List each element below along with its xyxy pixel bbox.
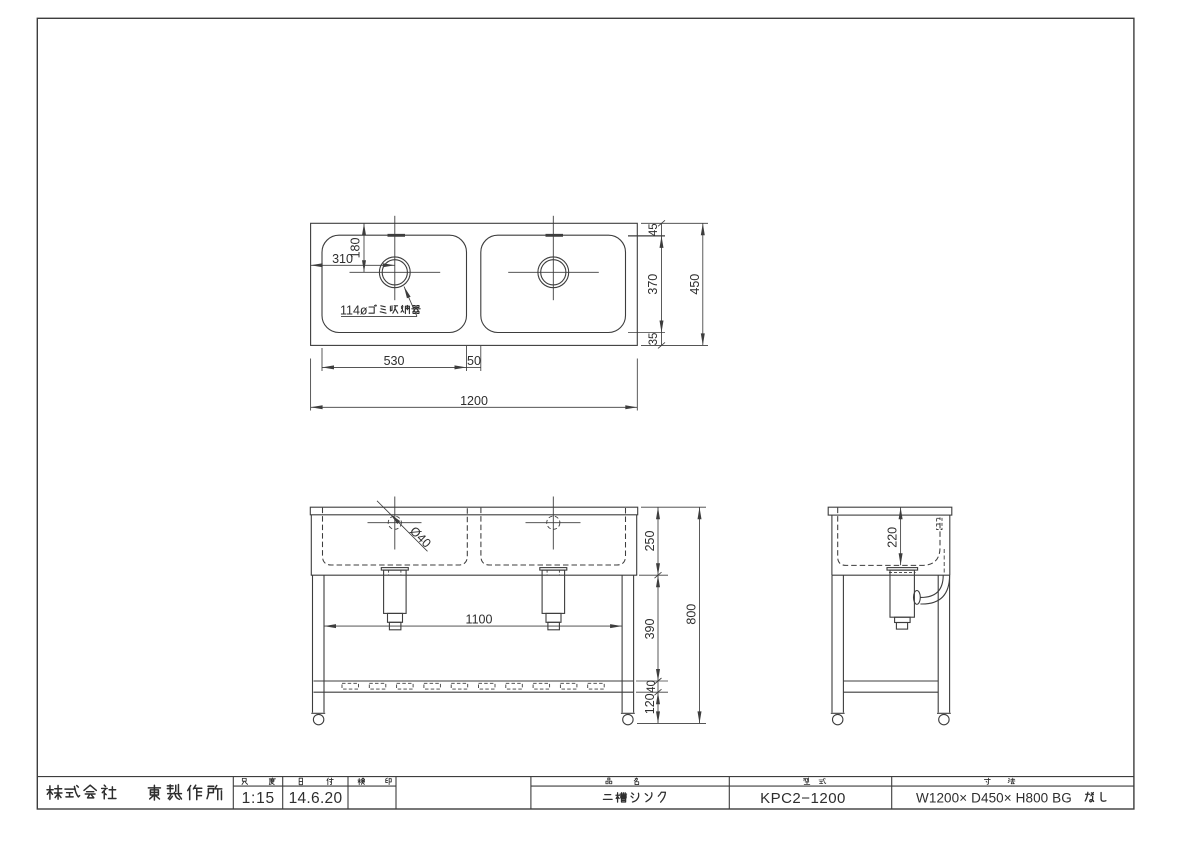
svg-text:1200: 1200 xyxy=(460,394,488,408)
svg-text:114ø: 114ø xyxy=(340,304,368,318)
svg-text:390: 390 xyxy=(643,619,657,640)
svg-text:120: 120 xyxy=(643,693,657,714)
svg-text:530: 530 xyxy=(384,354,405,368)
svg-text:1:15: 1:15 xyxy=(242,790,275,807)
svg-text:W1200× D450× H800 BG: W1200× D450× H800 BG xyxy=(916,791,1072,806)
svg-text:45: 45 xyxy=(648,223,660,236)
svg-text:180: 180 xyxy=(349,238,363,259)
svg-text:35: 35 xyxy=(648,333,660,346)
svg-text:220: 220 xyxy=(886,527,900,548)
svg-text:50: 50 xyxy=(467,354,481,368)
svg-text:450: 450 xyxy=(688,274,702,295)
svg-text:370: 370 xyxy=(646,274,660,295)
svg-text:250: 250 xyxy=(643,531,657,552)
svg-text:40: 40 xyxy=(646,680,658,693)
svg-text:14.6.20: 14.6.20 xyxy=(289,790,343,807)
svg-text:KPC2−1200: KPC2−1200 xyxy=(760,790,846,807)
svg-text:1100: 1100 xyxy=(466,613,493,627)
svg-text:800: 800 xyxy=(685,604,699,625)
